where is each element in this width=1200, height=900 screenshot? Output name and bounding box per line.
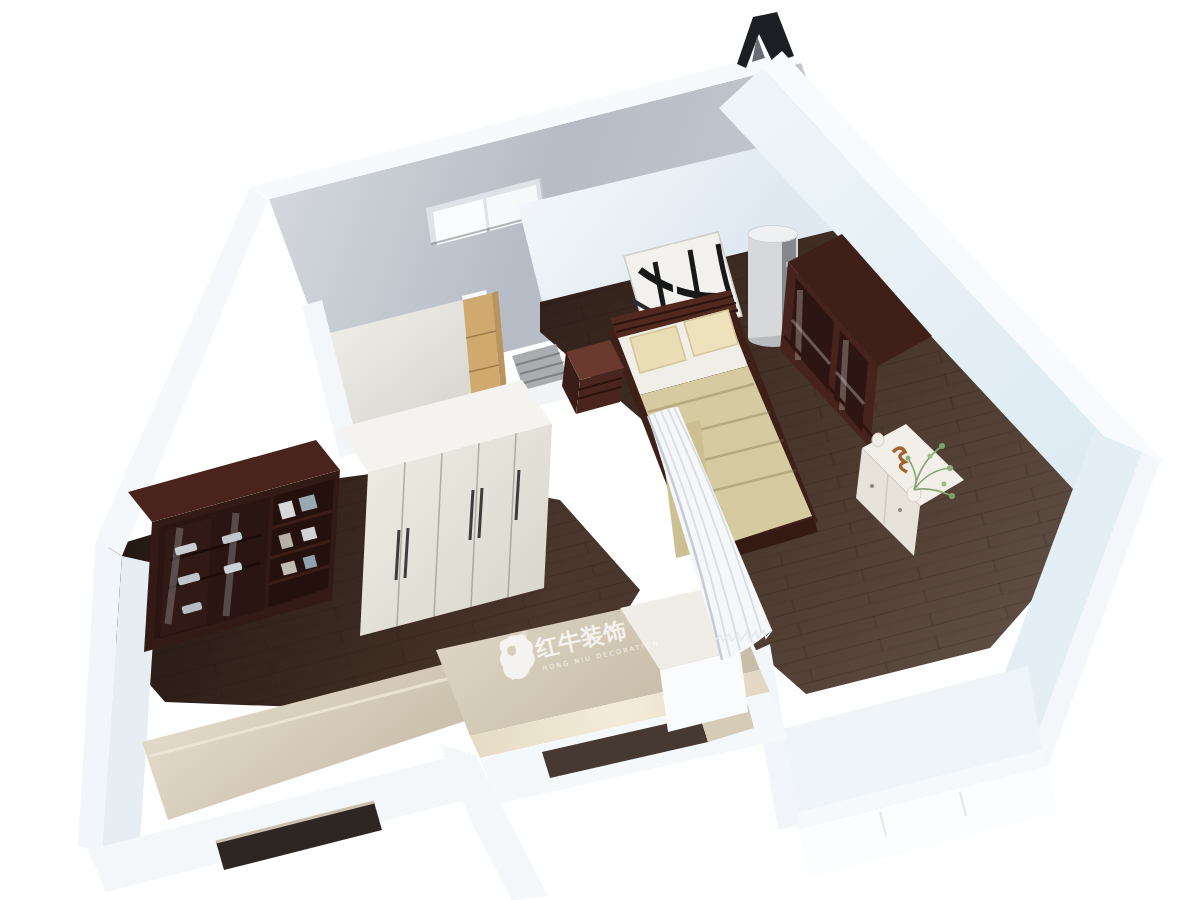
nightstand: [562, 340, 624, 414]
render-canvas: ® 红牛装饰 HONG NIU DECORATION: [0, 0, 1200, 900]
dresser-vase: [872, 433, 884, 447]
apartment-3d-render: ® 红牛装饰 HONG NIU DECORATION: [0, 0, 1200, 900]
